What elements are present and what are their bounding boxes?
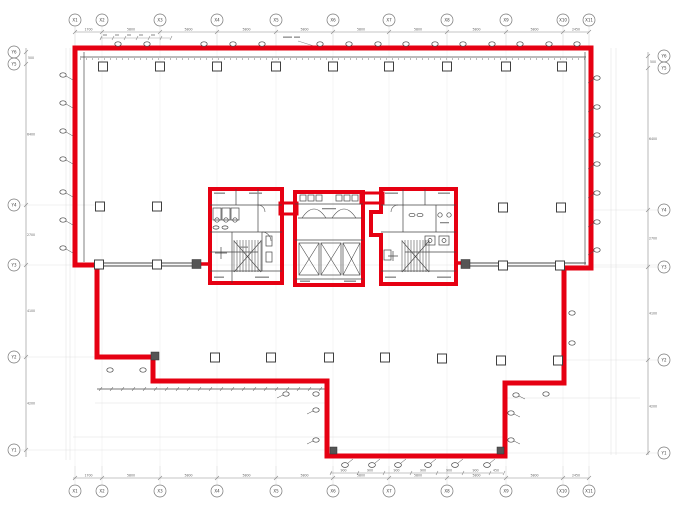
- dim-bottom: 1700: [84, 474, 92, 478]
- dim-bottom: 5800: [127, 474, 135, 478]
- grid-bubble-xtop-label: X4: [214, 18, 220, 23]
- dim-bottom: 5800: [357, 474, 365, 478]
- grid-bubble-yright-label: Y4: [661, 208, 667, 213]
- floorplan-drawing: X1X2X3X4X5X6X7X8X9X10X11X1X2X3X4X5X6X7X8…: [0, 0, 687, 518]
- dim-top: 5800: [530, 28, 538, 32]
- grid-bubble-xbottom-label: X1: [72, 489, 78, 494]
- floorplan-sheet: X1X2X3X4X5X6X7X8X9X10X11X1X2X3X4X5X6X7X8…: [0, 0, 687, 518]
- grid-bubble-xbottom-label: X9: [503, 489, 509, 494]
- grid-bubble-yleft-label: Y2: [11, 355, 17, 360]
- dim-right: 500: [650, 60, 656, 64]
- grid-bubble-xtop-label: X10: [559, 18, 567, 23]
- grid-bubble-yleft-label: Y3: [11, 263, 17, 268]
- grid-bubble-xtop-label: X11: [585, 18, 593, 23]
- dim-top: 5800: [357, 28, 365, 32]
- dim-top: 5800: [414, 28, 422, 32]
- dim-top: 5800: [242, 28, 250, 32]
- dim-left: 2700: [27, 233, 35, 237]
- grid-bubble-yright-label: Y2: [661, 358, 667, 363]
- tiny-annotation-smudge: [103, 35, 300, 38]
- dim-top: 5800: [300, 28, 308, 32]
- dim-right: 4100: [649, 312, 657, 316]
- grid-bubble-xtop-label: X8: [444, 18, 450, 23]
- dim-top: 5800: [127, 28, 135, 32]
- grid-bubble-xtop-label: X9: [503, 18, 509, 23]
- dim-sub-bottom: 900: [367, 469, 373, 473]
- dim-top: 5800: [184, 28, 192, 32]
- dim-top: 5800: [472, 28, 480, 32]
- grid-bubble-xbottom-label: X4: [214, 489, 220, 494]
- grid-bubble-yright-label: Y1: [661, 451, 667, 456]
- core-center-text-smudges: [300, 208, 356, 282]
- dim-bottom: 5800: [472, 474, 480, 478]
- dim-top: 1700: [84, 28, 92, 32]
- core-right-interior: [381, 189, 456, 272]
- oval-row-protrusion: [342, 459, 495, 467]
- grid-bubble-xtop-label: X7: [386, 18, 392, 23]
- grid-bubble-xtop-label: X5: [273, 18, 279, 23]
- dim-left: 6400: [27, 133, 35, 137]
- oval-cluster-lower-right: [508, 392, 549, 444]
- grid-bubble-xbottom-label: X10: [559, 489, 567, 494]
- dimension-numbers: 1700580058005800580058005800580058002450…: [27, 28, 657, 478]
- grid-bubble-xtop-label: X1: [72, 18, 78, 23]
- grid-bubble-yleft-label: Y1: [11, 448, 17, 453]
- dim-sub-bottom: 450: [493, 469, 499, 473]
- dim-bottom: 5800: [530, 474, 538, 478]
- grid-bubble-yleft-label: Y4: [11, 203, 17, 208]
- grid-bubble-yright-label: Y5: [661, 66, 667, 71]
- grid-bubble-xbottom-label: X3: [157, 489, 163, 494]
- dim-top: 2450: [572, 28, 580, 32]
- dim-bottom: 5800: [414, 474, 422, 478]
- dim-left: 4200: [27, 402, 35, 406]
- dim-right: 6400: [649, 137, 657, 141]
- grid-bubble-xbottom-label: X2: [99, 489, 105, 494]
- structural-columns: [95, 62, 567, 365]
- oval-column-left: [60, 73, 73, 253]
- dim-right: 2700: [649, 237, 657, 241]
- grid-bubble-xbottom-label: X11: [585, 489, 593, 494]
- grid-bubble-yleft-label: Y5: [11, 62, 17, 67]
- grid-bubble-xbottom-label: X5: [273, 489, 279, 494]
- oval-markers: [60, 42, 600, 468]
- grid-bubble-xbottom-label: X6: [330, 489, 336, 494]
- grid-bubble-xtop-label: X2: [99, 18, 105, 23]
- grid-bubble-xbottom-label: X7: [386, 489, 392, 494]
- construction-grid-lines: [21, 27, 664, 484]
- grid-bubble-yright-label: Y3: [661, 265, 667, 270]
- core-center-interior: [295, 195, 363, 279]
- dim-bottom: 2450: [572, 474, 580, 478]
- grid-bubble-xbottom-label: X8: [444, 489, 450, 494]
- grid-bubble-xtop-label: X6: [330, 18, 336, 23]
- dim-sub-bottom: 900: [446, 469, 452, 473]
- grid-bubble-yright-label: Y6: [661, 54, 667, 59]
- dim-sub-bottom: 900: [340, 469, 346, 473]
- dim-sub-bottom: 900: [393, 469, 399, 473]
- oval-column-right: [569, 76, 600, 345]
- dim-bottom: 5800: [242, 474, 250, 478]
- dim-sub-bottom: 900: [420, 469, 426, 473]
- grid-bubble-xtop-label: X3: [157, 18, 163, 23]
- dim-bottom: 5800: [184, 474, 192, 478]
- dim-sub-bottom: 900: [472, 469, 478, 473]
- dim-left: 500: [28, 56, 34, 60]
- core-left-interior: [210, 189, 282, 283]
- dim-bottom: 5800: [300, 474, 308, 478]
- core-center-outline: [295, 192, 363, 285]
- dim-right: 4200: [649, 405, 657, 409]
- grid-bubble-yleft-label: Y6: [11, 50, 17, 55]
- dimension-lines: [24, 30, 650, 480]
- dim-left: 4100: [27, 309, 35, 313]
- grid-bubbles: X1X2X3X4X5X6X7X8X9X10X11X1X2X3X4X5X6X7X8…: [8, 14, 670, 497]
